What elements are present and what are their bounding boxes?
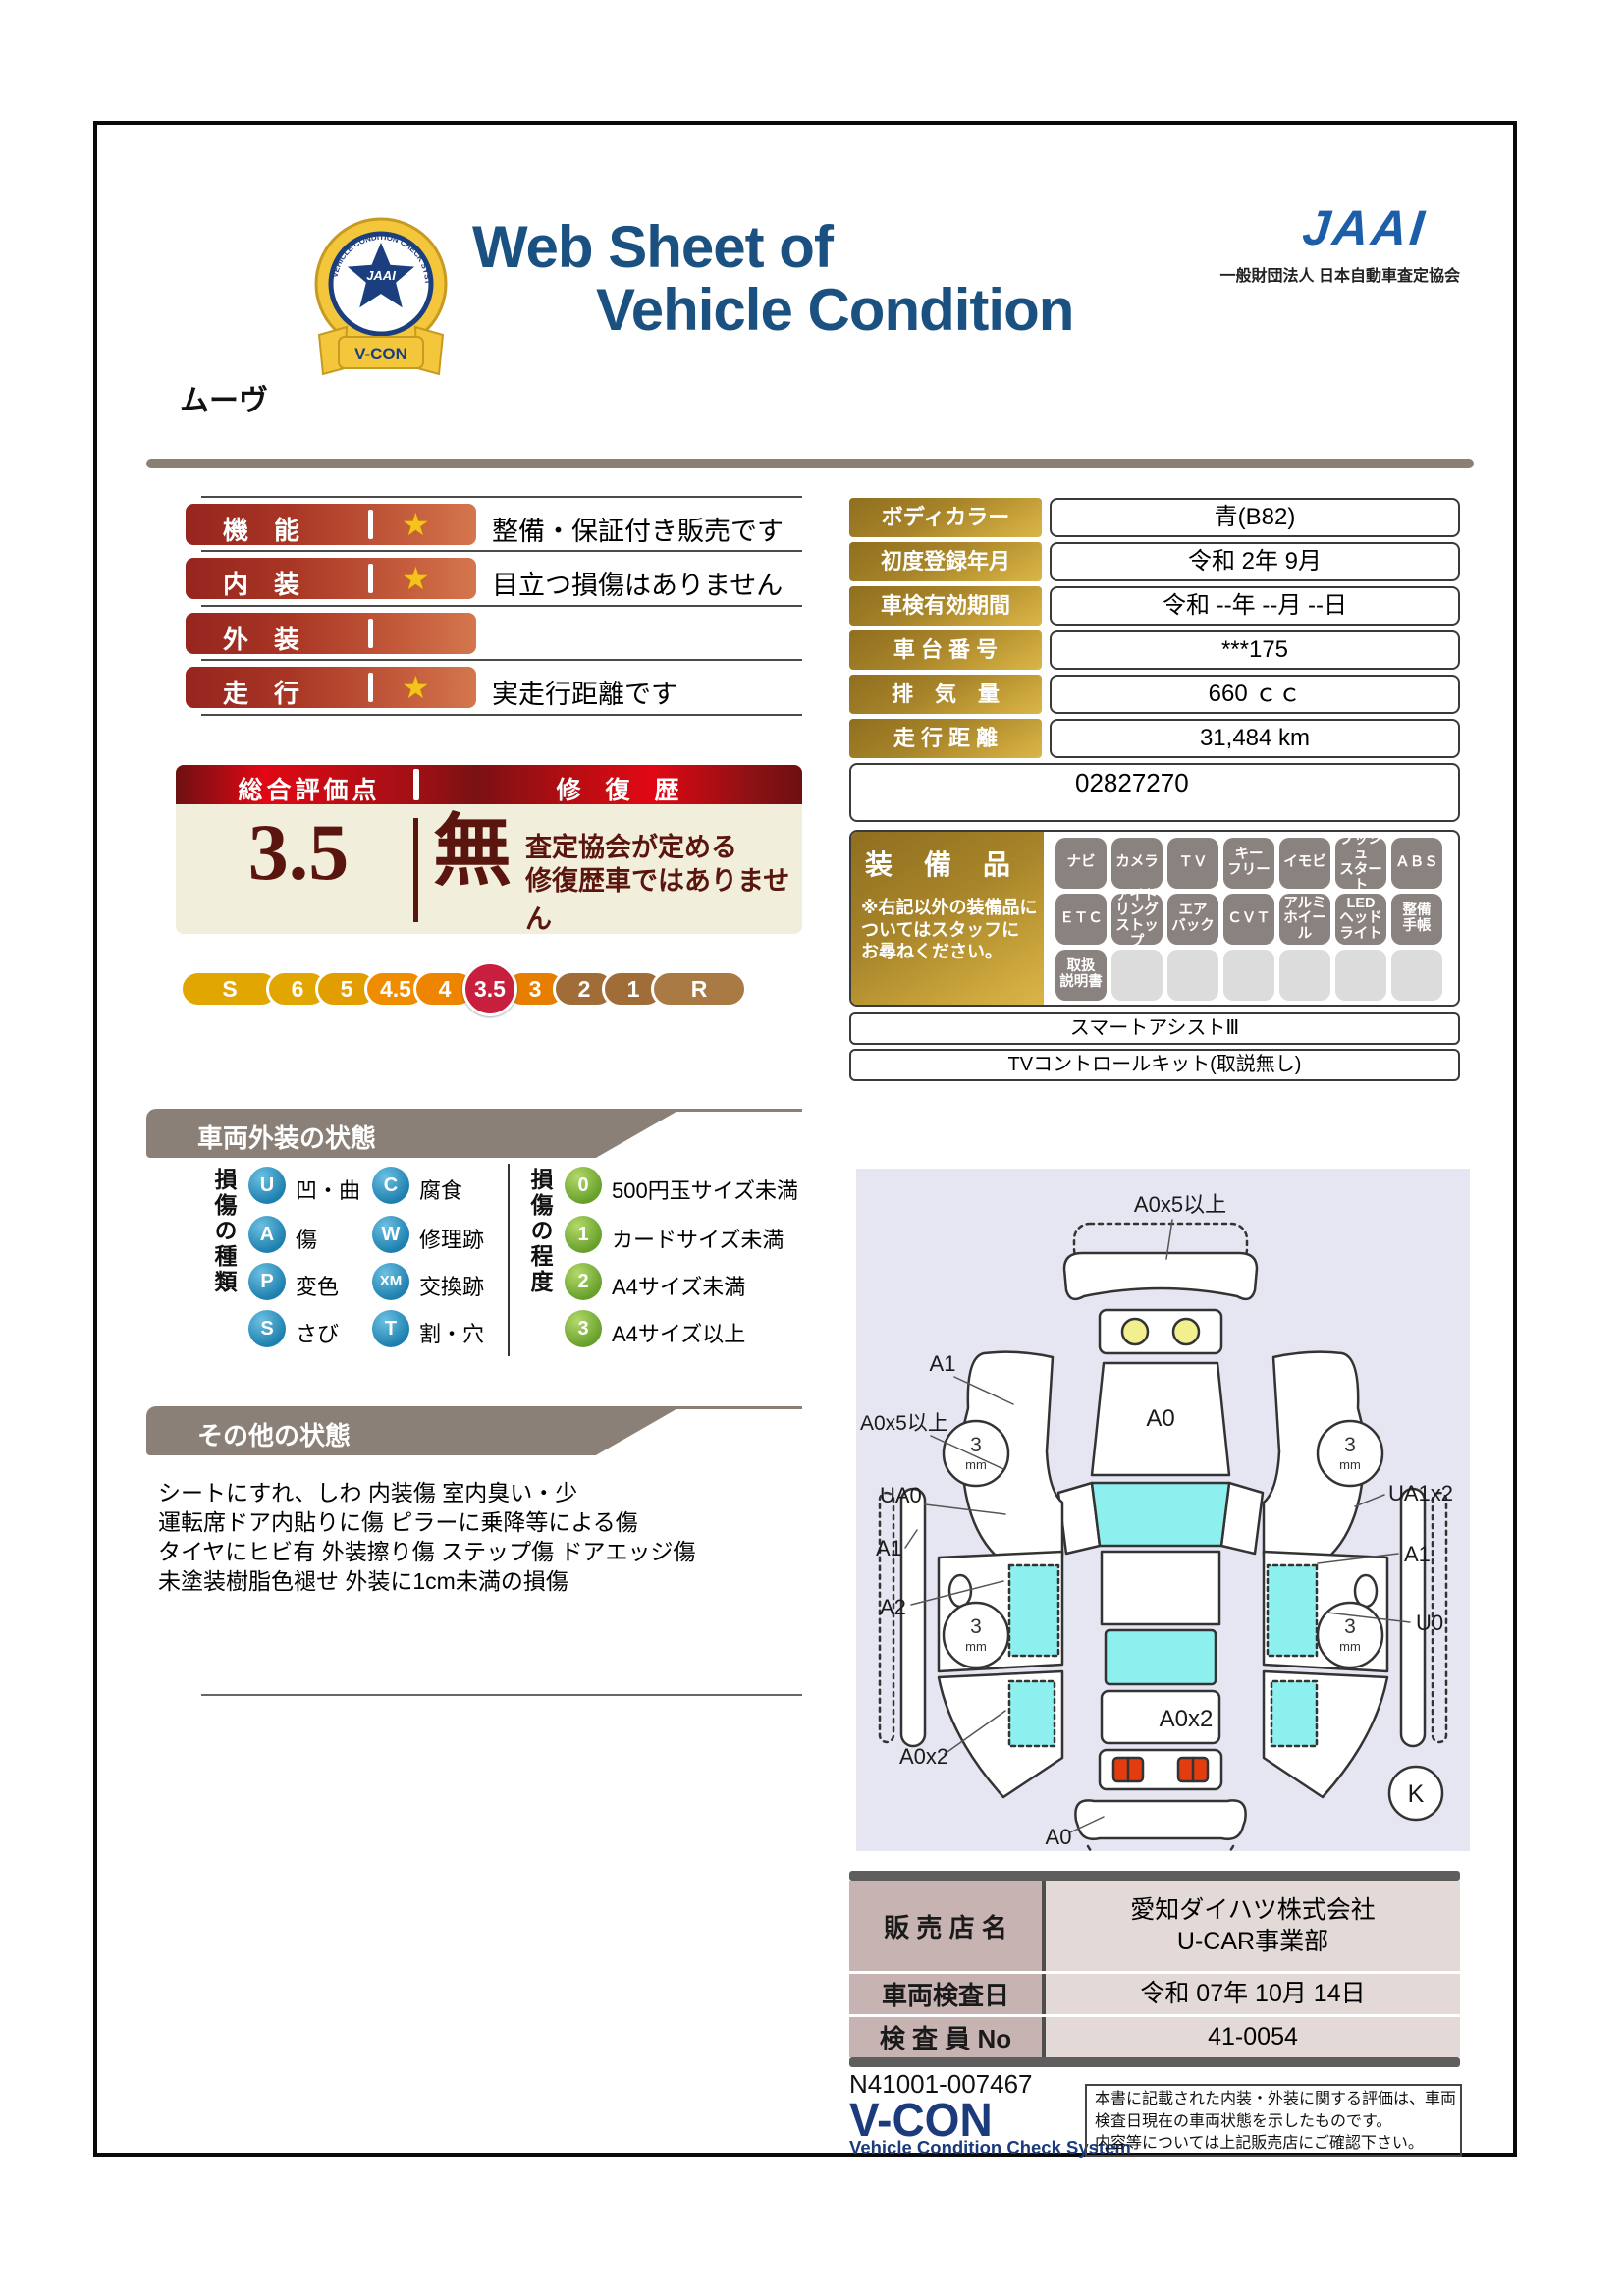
dealer-table-bottom-bar bbox=[849, 2057, 1460, 2067]
info-value-inspection-period: 令和 --年 --月 --日 bbox=[1050, 586, 1460, 626]
diagram-label-right-front-door: UA1x2 bbox=[1388, 1481, 1453, 1505]
equipment-chip: ＡＢＳ bbox=[1391, 838, 1442, 889]
section-tab-rule bbox=[647, 1406, 802, 1409]
rating-row-interior: 内 装 ★ bbox=[186, 558, 476, 599]
sheet-frame: VEHICLE CONDITION CHECK SYSTEM JAAI V-CO… bbox=[93, 121, 1517, 2157]
repair-history-value: 無 bbox=[433, 812, 512, 891]
rating-rule bbox=[201, 714, 802, 716]
rating-label: 外 装 bbox=[223, 620, 299, 656]
windshield bbox=[1092, 1483, 1229, 1546]
diagram-label-left-rear-corner: A0x2 bbox=[899, 1744, 948, 1769]
dealer-row-inspection-date: 車両検査日 令和 07年 10月 14日 bbox=[849, 1974, 1460, 2014]
damage-degree-group-label: 損傷の程度 bbox=[523, 1168, 557, 1295]
section-tab-rule bbox=[647, 1109, 802, 1112]
rating-rule bbox=[201, 550, 802, 552]
rating-note: 目立つ損傷はありません bbox=[492, 564, 816, 602]
diagram-label-left-sill: A1 bbox=[876, 1536, 902, 1560]
section-tab-exterior: 車両外装の状態 bbox=[146, 1109, 681, 1158]
rating-divider bbox=[368, 619, 373, 648]
front-panel bbox=[1100, 1310, 1221, 1353]
equipment-chip: ＴＶ bbox=[1167, 838, 1218, 889]
equipment-extra-row2: TVコントロールキット(取説無し) bbox=[849, 1049, 1460, 1081]
dealer-table-top-bar bbox=[849, 1871, 1460, 1881]
equipment-chip-empty bbox=[1391, 950, 1442, 1001]
rating-divider bbox=[368, 564, 373, 593]
star-icon: ★ bbox=[402, 506, 430, 543]
key-mark-label: K bbox=[1408, 1780, 1425, 1808]
other-condition-line: タイヤにヒビ有 外装擦り傷 ステップ傷 ドアエッジ傷 bbox=[158, 1533, 695, 1566]
overall-score-value: 3.5 bbox=[205, 808, 392, 897]
equipment-chip: 取扱 説明書 bbox=[1055, 950, 1107, 1001]
rating-note: 実走行距離です bbox=[492, 673, 816, 711]
panel-divider bbox=[413, 818, 418, 922]
equipment-title: 装 備 品 bbox=[851, 832, 1044, 883]
damage-degree-badge-3: 3 bbox=[565, 1310, 602, 1347]
equipment-chip-empty bbox=[1335, 950, 1386, 1001]
damage-type-badge-A: A bbox=[248, 1216, 286, 1253]
info-label-chassis-number: 車 台 番 号 bbox=[849, 630, 1042, 670]
grade-pill-S: S bbox=[180, 970, 280, 1008]
overall-score-header: 総合評価点 bbox=[205, 771, 413, 806]
info-label-first-registration: 初度登録年月 bbox=[849, 542, 1042, 581]
other-condition-line: 運転席ドア内貼りに傷 ピラーに乗降等による傷 bbox=[158, 1503, 638, 1537]
grade-pill-R: R bbox=[651, 970, 747, 1008]
legend-divider bbox=[508, 1164, 510, 1356]
repair-note-line2: 修復歴車ではありません bbox=[525, 859, 802, 934]
damage-type-label: 変色 bbox=[296, 1270, 339, 1301]
rating-label: 内 装 bbox=[223, 565, 299, 601]
right-side-panels bbox=[1264, 1352, 1446, 1797]
vcon-emblem: VEHICLE CONDITION CHECK SYSTEM JAAI V-CO… bbox=[311, 215, 451, 390]
reference-number-box: 02827270 bbox=[849, 763, 1460, 822]
other-condition-line: シートにすれ、しわ 内装傷 室内臭い・少 bbox=[158, 1474, 577, 1507]
star-icon: ★ bbox=[402, 669, 430, 706]
diagram-label-front-bumper: A0x5以上 bbox=[1134, 1192, 1226, 1217]
overall-score-panel: 総合評価点 修 復 歴 3.5 無 査定協会が定める 修復歴車ではありません bbox=[176, 765, 802, 934]
rating-rule bbox=[201, 659, 802, 661]
damage-type-badge-U: U bbox=[248, 1167, 286, 1204]
info-label-displacement: 排 気 量 bbox=[849, 675, 1042, 714]
info-value-chassis-number: ***175 bbox=[1050, 630, 1460, 670]
info-label-mileage: 走 行 距 離 bbox=[849, 719, 1042, 758]
star-icon: ★ bbox=[402, 560, 430, 597]
damage-type-label: 腐食 bbox=[419, 1174, 462, 1205]
dealer-row-shop: 販 売 店 名 愛知ダイハツ株式会社 U-CAR事業部 bbox=[849, 1881, 1460, 1971]
diagram-label-rear-bumper: A0 bbox=[1046, 1825, 1072, 1849]
diagram-label-right-underbody: U0 bbox=[1416, 1611, 1443, 1635]
diagram-label-front-left-fender: A1 bbox=[930, 1351, 956, 1376]
damage-type-label: 交換跡 bbox=[419, 1270, 484, 1301]
damage-type-badge-C: C bbox=[372, 1167, 409, 1204]
equipment-chip: アルミ ホイール bbox=[1279, 894, 1330, 945]
emblem-ribbon-text: V-CON bbox=[354, 345, 407, 363]
dealer-value: 令和 07年 10月 14日 bbox=[1042, 1974, 1460, 2014]
rating-rule bbox=[201, 496, 802, 498]
other-section-rule bbox=[201, 1694, 802, 1696]
page-title-line1: Web Sheet of bbox=[472, 213, 833, 281]
equipment-chip: カメラ bbox=[1111, 838, 1163, 889]
svg-text:mm: mm bbox=[965, 1457, 987, 1472]
damage-type-badge-W: W bbox=[372, 1216, 409, 1253]
equipment-chip: LED ヘッド ライト bbox=[1335, 894, 1386, 945]
dealer-table: 販 売 店 名 愛知ダイハツ株式会社 U-CAR事業部 車両検査日 令和 07年… bbox=[849, 1871, 1460, 2067]
header-divider-bar bbox=[413, 769, 419, 800]
info-value-bodycolor: 青(B82) bbox=[1050, 498, 1460, 537]
car-diagram-svg: A0x5以上 A1 A0 A0x5以上 UA0 UA1x2 A1 A2 A1 U… bbox=[856, 1169, 1470, 1851]
damage-degree-badge-1: 1 bbox=[565, 1216, 602, 1253]
rear-window bbox=[1106, 1630, 1216, 1684]
info-value-displacement: 660 ｃｃ bbox=[1050, 675, 1460, 714]
info-value-first-registration: 令和 2年 9月 bbox=[1050, 542, 1460, 581]
header-divider bbox=[146, 459, 1474, 468]
damage-type-badge-XM: XM bbox=[372, 1263, 409, 1300]
disclaimer-line: 内容等については上記販売店にご確認下さい。 bbox=[1095, 2133, 1452, 2156]
svg-text:3: 3 bbox=[970, 1615, 982, 1638]
overall-panel-header: 総合評価点 修 復 歴 bbox=[176, 765, 802, 804]
damage-type-label: 割・穴 bbox=[419, 1317, 484, 1348]
grade-scale: S654.543.5321R bbox=[180, 959, 808, 1018]
equipment-chip: エア バック bbox=[1167, 894, 1218, 945]
equipment-chip-empty bbox=[1279, 950, 1330, 1001]
equipment-extra-row1: スマートアシストⅢ bbox=[849, 1012, 1460, 1045]
dealer-row-inspector-no: 検 査 員 No 41-0054 bbox=[849, 2017, 1460, 2057]
dealer-label: 車両検査日 bbox=[849, 1974, 1042, 2014]
grade-pill-3.5: 3.5 bbox=[462, 961, 517, 1016]
damage-type-group-label: 損傷の種類 bbox=[207, 1168, 241, 1295]
rating-label: 走 行 bbox=[223, 674, 299, 710]
diagram-label-left-rear-quarter: A2 bbox=[880, 1595, 906, 1619]
equipment-chip-empty bbox=[1167, 950, 1218, 1001]
diagram-label-right-rear-quarter: A1 bbox=[1404, 1542, 1431, 1566]
diagram-label-trunk: A0x2 bbox=[1160, 1706, 1214, 1732]
headlight-left-icon bbox=[1122, 1319, 1148, 1344]
repair-history-header: 修 復 歴 bbox=[470, 771, 765, 806]
damage-type-label: さび bbox=[296, 1317, 339, 1348]
disclaimer-line: 本書に記載された内装・外装に関する評価は、車両 bbox=[1095, 2089, 1452, 2111]
rating-label: 機 能 bbox=[223, 511, 299, 547]
damage-type-label: 傷 bbox=[296, 1223, 317, 1254]
vehicle-name: ムーヴ bbox=[180, 376, 268, 419]
damage-degree-label: 500円玉サイズ未満 bbox=[612, 1174, 798, 1205]
rating-rule bbox=[201, 605, 802, 607]
rating-note: 整備・保証付き販売です bbox=[492, 510, 816, 548]
damage-degree-label: A4サイズ以上 bbox=[612, 1317, 745, 1348]
damage-type-badge-P: P bbox=[248, 1263, 286, 1300]
info-value-mileage: 31,484 km bbox=[1050, 719, 1460, 758]
equipment-grid: ナビカメラＴＶキー フリーイモビプッシュ スタートＡＢＳＥＴＣアイド リング ス… bbox=[1055, 838, 1448, 1001]
rear-bumper bbox=[1075, 1800, 1245, 1838]
rating-divider bbox=[368, 673, 373, 702]
svg-text:mm: mm bbox=[1339, 1457, 1361, 1472]
equipment-chip: ＥＴＣ bbox=[1055, 894, 1107, 945]
equipment-panel: 装 備 品 ※右記以外の装備品に ついてはスタッフに お尋ねください。 ナビカメ… bbox=[849, 830, 1460, 1007]
disclaimer-box: 本書に記載された内装・外装に関する評価は、車両 検査日現在の車両状態を示したもの… bbox=[1085, 2084, 1462, 2157]
section-tab-other: その他の状態 bbox=[146, 1406, 681, 1455]
rating-row-mileage: 走 行 ★ bbox=[186, 667, 476, 708]
rating-row-function: 機 能 ★ bbox=[186, 504, 476, 545]
diagram-label-left-front-door: UA0 bbox=[880, 1483, 922, 1507]
rating-row-exterior: 外 装 ★ bbox=[186, 613, 476, 654]
dealer-value: 愛知ダイハツ株式会社 U-CAR事業部 bbox=[1042, 1881, 1460, 1971]
damage-type-badge-T: T bbox=[372, 1310, 409, 1347]
info-label-inspection-period: 車検有効期間 bbox=[849, 586, 1042, 626]
diagram-label-hood: A0 bbox=[1146, 1405, 1174, 1432]
damage-degree-label: A4サイズ未満 bbox=[612, 1270, 745, 1301]
damage-degree-badge-2: 2 bbox=[565, 1263, 602, 1300]
damage-type-label: 凹・曲 bbox=[296, 1174, 360, 1205]
svg-text:3: 3 bbox=[1344, 1434, 1356, 1456]
equipment-chip: 整備 手帳 bbox=[1391, 894, 1442, 945]
jaai-subtitle: 一般財団法人 日本自動車査定協会 bbox=[1099, 262, 1460, 286]
front-bumper bbox=[1064, 1253, 1257, 1299]
rating-divider bbox=[368, 510, 373, 539]
equipment-chip-empty bbox=[1223, 950, 1274, 1001]
damage-type-label: 修理跡 bbox=[419, 1223, 484, 1254]
jaai-logo: JAAI bbox=[1300, 199, 1430, 256]
diagram-label-left-door-outer: A0x5以上 bbox=[860, 1412, 948, 1435]
equipment-gold-panel: 装 備 品 ※右記以外の装備品に ついてはスタッフに お尋ねください。 bbox=[851, 832, 1044, 1005]
headlight-right-icon bbox=[1173, 1319, 1199, 1344]
equipment-chip-empty bbox=[1111, 950, 1163, 1001]
other-condition-line: 未塗装樹脂色褪せ 外装に1cm未満の損傷 bbox=[158, 1562, 568, 1596]
car-damage-diagram: A0x5以上 A1 A0 A0x5以上 UA0 UA1x2 A1 A2 A1 U… bbox=[856, 1169, 1470, 1851]
equipment-chip: ナビ bbox=[1055, 838, 1107, 889]
equipment-chip: アイド リング ストップ bbox=[1111, 894, 1163, 945]
svg-text:3: 3 bbox=[970, 1434, 982, 1456]
info-label-bodycolor: ボディカラー bbox=[849, 498, 1042, 537]
dealer-label: 販 売 店 名 bbox=[849, 1881, 1042, 1971]
emblem-center-text: JAAI bbox=[366, 268, 396, 283]
dealer-label: 検 査 員 No bbox=[849, 2017, 1042, 2057]
svg-text:3: 3 bbox=[1344, 1615, 1356, 1638]
page-title-line2: Vehicle Condition bbox=[596, 276, 1073, 344]
equipment-chip: プッシュ スタート bbox=[1335, 838, 1386, 889]
equipment-chip: キー フリー bbox=[1223, 838, 1274, 889]
equipment-chip: ＣＶＴ bbox=[1223, 894, 1274, 945]
svg-text:mm: mm bbox=[965, 1639, 987, 1654]
disclaimer-line: 検査日現在の車両状態を示したものです。 bbox=[1095, 2111, 1452, 2134]
damage-degree-badge-0: 0 bbox=[565, 1167, 602, 1204]
damage-type-badge-S: S bbox=[248, 1310, 286, 1347]
svg-text:mm: mm bbox=[1339, 1639, 1361, 1654]
rear-bumper-outline bbox=[1088, 1846, 1233, 1851]
dealer-value: 41-0054 bbox=[1042, 2017, 1460, 2057]
roof bbox=[1102, 1552, 1219, 1624]
equipment-note: ※右記以外の装備品に ついてはスタッフに お尋ねください。 bbox=[851, 883, 1044, 963]
equipment-chip: イモビ bbox=[1279, 838, 1330, 889]
damage-degree-label: カードサイズ未満 bbox=[612, 1223, 784, 1254]
